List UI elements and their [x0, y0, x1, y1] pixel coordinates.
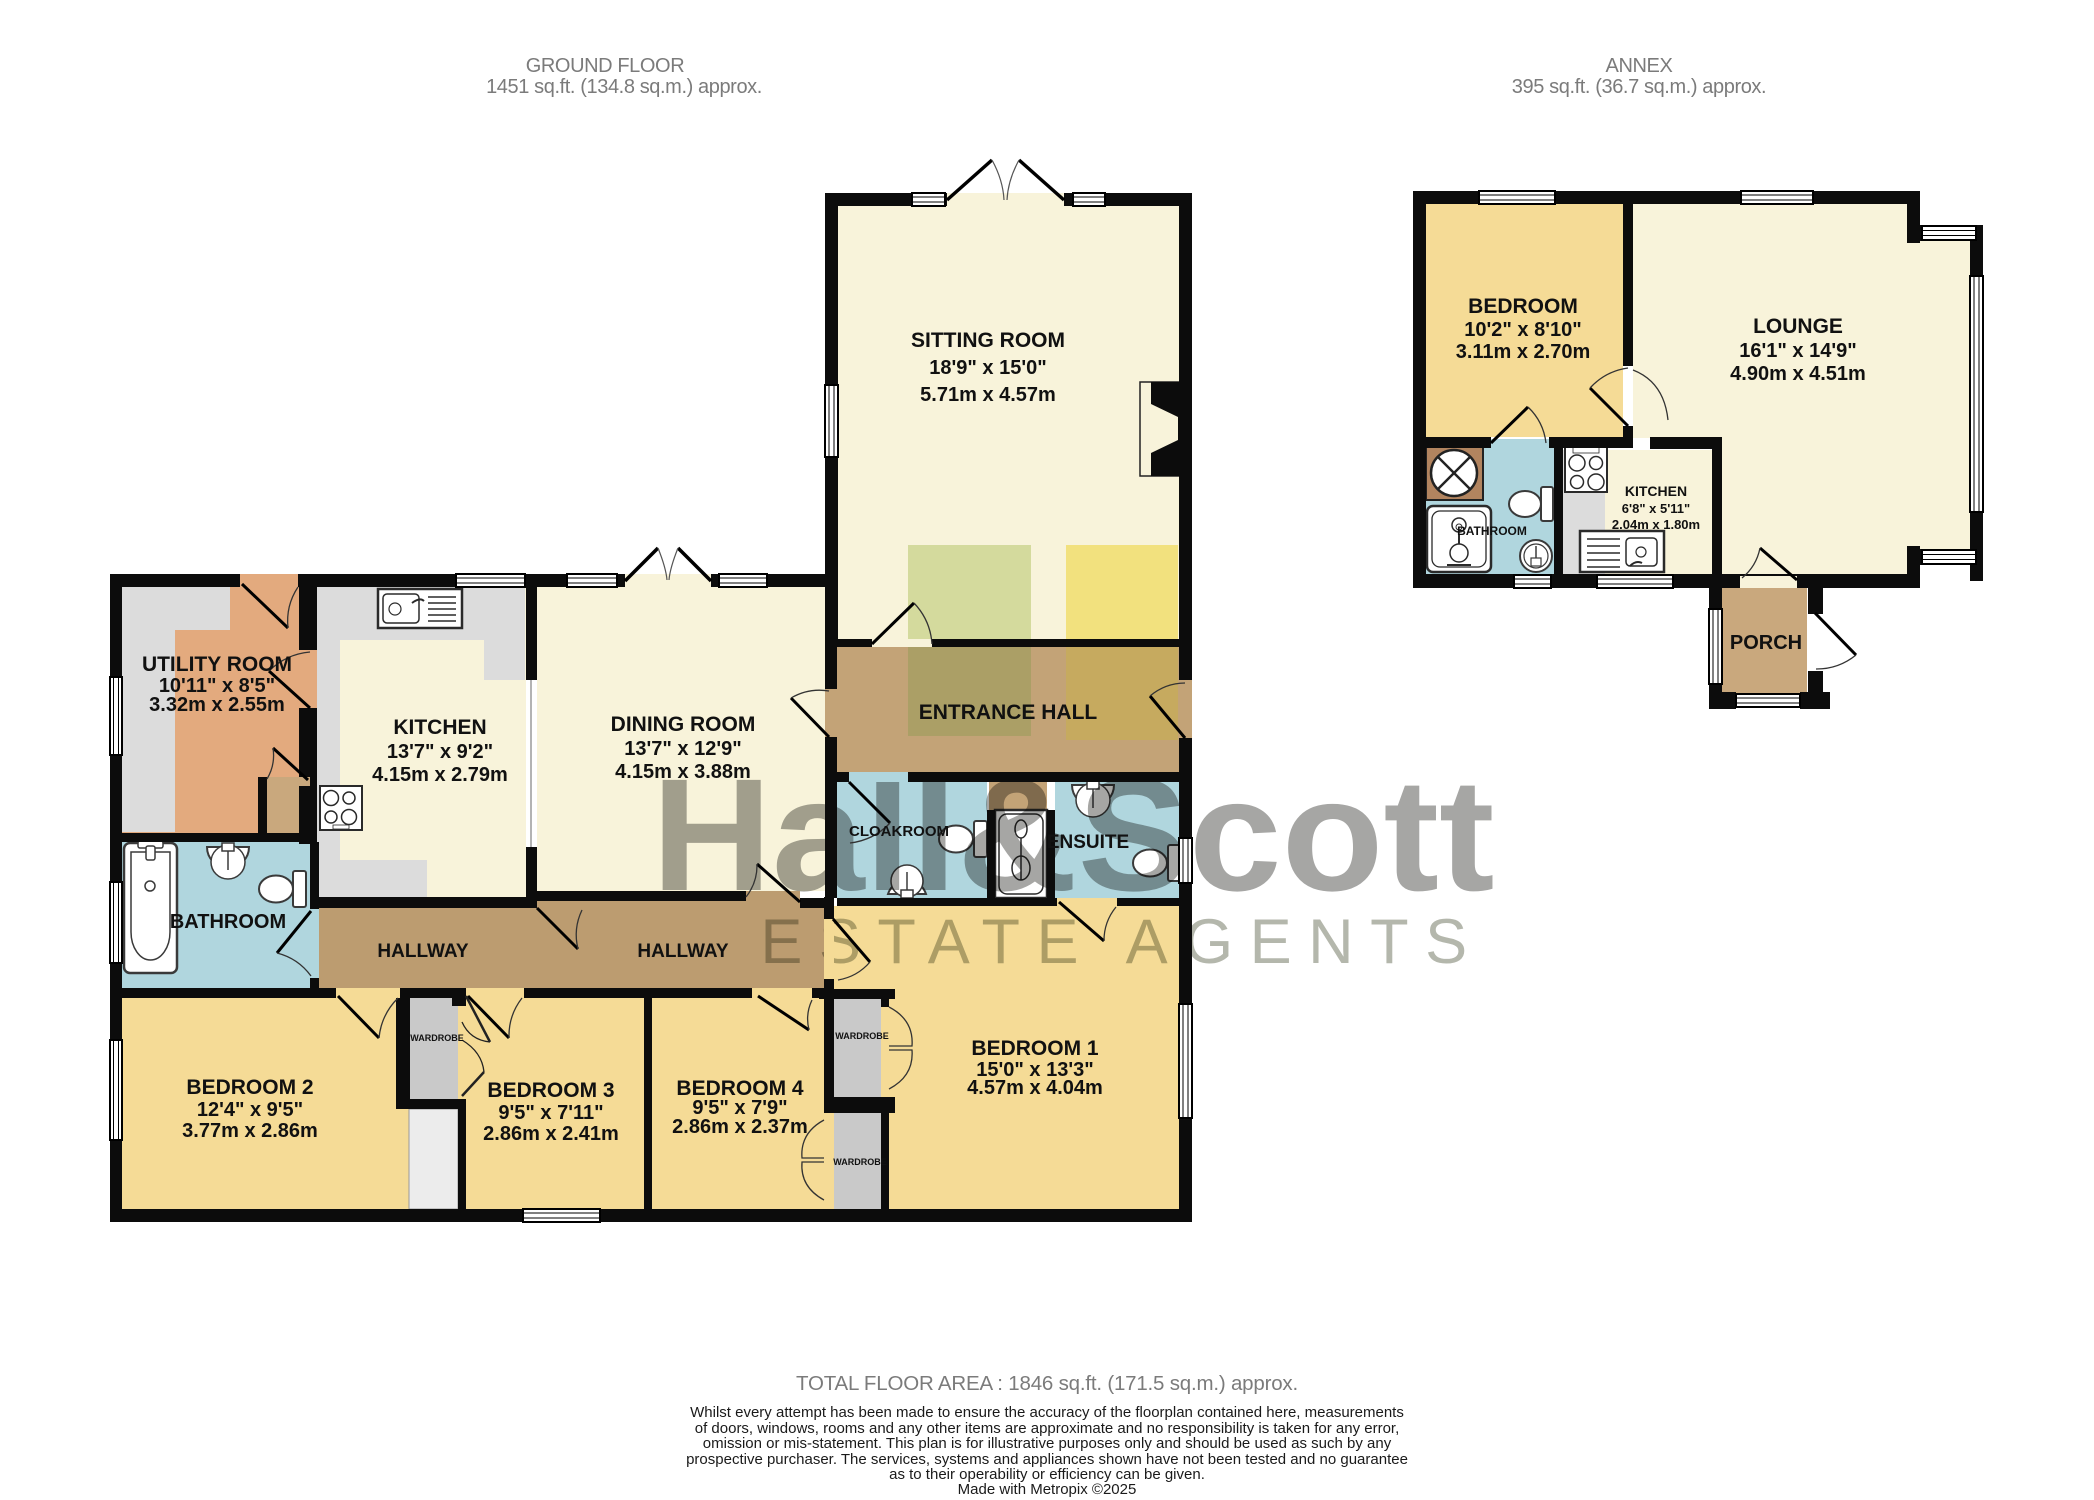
svg-text:4.57m x 4.04m: 4.57m x 4.04m — [967, 1077, 1103, 1099]
svg-text:GROUND FLOOR: GROUND FLOOR — [526, 55, 685, 77]
svg-text:KITCHEN: KITCHEN — [1625, 483, 1687, 499]
svg-text:2.86m x 2.41m: 2.86m x 2.41m — [483, 1123, 619, 1145]
svg-text:HALLWAY: HALLWAY — [637, 941, 728, 962]
svg-text:6'8" x 5'11": 6'8" x 5'11" — [1622, 501, 1690, 516]
svg-text:4.90m x 4.51m: 4.90m x 4.51m — [1730, 363, 1866, 385]
svg-text:ENTRANCE HALL: ENTRANCE HALL — [919, 701, 1098, 724]
svg-text:BEDROOM 1: BEDROOM 1 — [971, 1037, 1099, 1060]
svg-text:16'1" x 14'9": 16'1" x 14'9" — [1739, 340, 1856, 362]
svg-text:13'7" x 12'9": 13'7" x 12'9" — [624, 738, 741, 760]
svg-text:2.86m x 2.37m: 2.86m x 2.37m — [672, 1116, 808, 1138]
svg-text:ESTATE AGENTS: ESTATE AGENTS — [760, 907, 1483, 977]
svg-text:BEDROOM 2: BEDROOM 2 — [186, 1076, 313, 1099]
svg-text:WARDROBE: WARDROBE — [833, 1157, 887, 1167]
svg-text:HALLWAY: HALLWAY — [377, 941, 468, 962]
svg-text:BEDROOM 3: BEDROOM 3 — [487, 1079, 614, 1102]
svg-text:18'9" x 15'0": 18'9" x 15'0" — [929, 357, 1046, 379]
svg-text:12'4" x 9'5": 12'4" x 9'5" — [197, 1099, 303, 1121]
svg-text:ENSUITE: ENSUITE — [1047, 832, 1129, 853]
svg-text:CLOAKROOM: CLOAKROOM — [849, 823, 949, 840]
svg-text:UTILITY ROOM: UTILITY ROOM — [142, 653, 292, 676]
svg-text:395 sq.ft. (36.7 sq.m.) approx: 395 sq.ft. (36.7 sq.m.) approx. — [1512, 76, 1766, 98]
svg-text:WARDROBE: WARDROBE — [835, 1031, 889, 1041]
svg-text:4.15m x 3.88m: 4.15m x 3.88m — [615, 761, 751, 783]
svg-text:Whilst every attempt has been: Whilst every attempt has been made to en… — [690, 1404, 1404, 1421]
svg-text:KITCHEN: KITCHEN — [393, 716, 486, 739]
svg-text:omission or mis-statement. Thi: omission or mis-statement. This plan is … — [703, 1435, 1392, 1452]
svg-text:BATHROOM: BATHROOM — [170, 911, 286, 933]
svg-text:BEDROOM: BEDROOM — [1468, 295, 1578, 318]
svg-text:LOUNGE: LOUNGE — [1753, 315, 1843, 338]
svg-text:3.32m x 2.55m: 3.32m x 2.55m — [149, 694, 285, 716]
svg-text:SITTING ROOM: SITTING ROOM — [911, 329, 1065, 352]
svg-text:13'7" x 9'2": 13'7" x 9'2" — [387, 741, 493, 763]
svg-text:3.77m x 2.86m: 3.77m x 2.86m — [182, 1120, 318, 1142]
svg-text:5.71m x 4.57m: 5.71m x 4.57m — [920, 384, 1056, 406]
svg-text:DINING ROOM: DINING ROOM — [611, 713, 756, 736]
svg-text:Made with Metropix ©2025: Made with Metropix ©2025 — [958, 1481, 1137, 1498]
svg-text:3.11m x 2.70m: 3.11m x 2.70m — [1456, 341, 1591, 363]
svg-text:PORCH: PORCH — [1730, 632, 1802, 654]
svg-text:ANNEX: ANNEX — [1606, 55, 1673, 77]
svg-text:10'2" x 8'10": 10'2" x 8'10" — [1464, 319, 1581, 341]
svg-text:WARDROBE: WARDROBE — [410, 1033, 464, 1043]
svg-text:BATHROOM: BATHROOM — [1457, 524, 1527, 538]
svg-text:9'5" x 7'11": 9'5" x 7'11" — [498, 1102, 603, 1124]
svg-text:2.04m x 1.80m: 2.04m x 1.80m — [1612, 517, 1700, 532]
svg-text:4.15m x 2.79m: 4.15m x 2.79m — [372, 764, 508, 786]
svg-text:1451 sq.ft. (134.8 sq.m.) appr: 1451 sq.ft. (134.8 sq.m.) approx. — [486, 76, 762, 98]
svg-text:TOTAL FLOOR AREA : 1846 sq.ft.: TOTAL FLOOR AREA : 1846 sq.ft. (171.5 sq… — [796, 1372, 1298, 1395]
